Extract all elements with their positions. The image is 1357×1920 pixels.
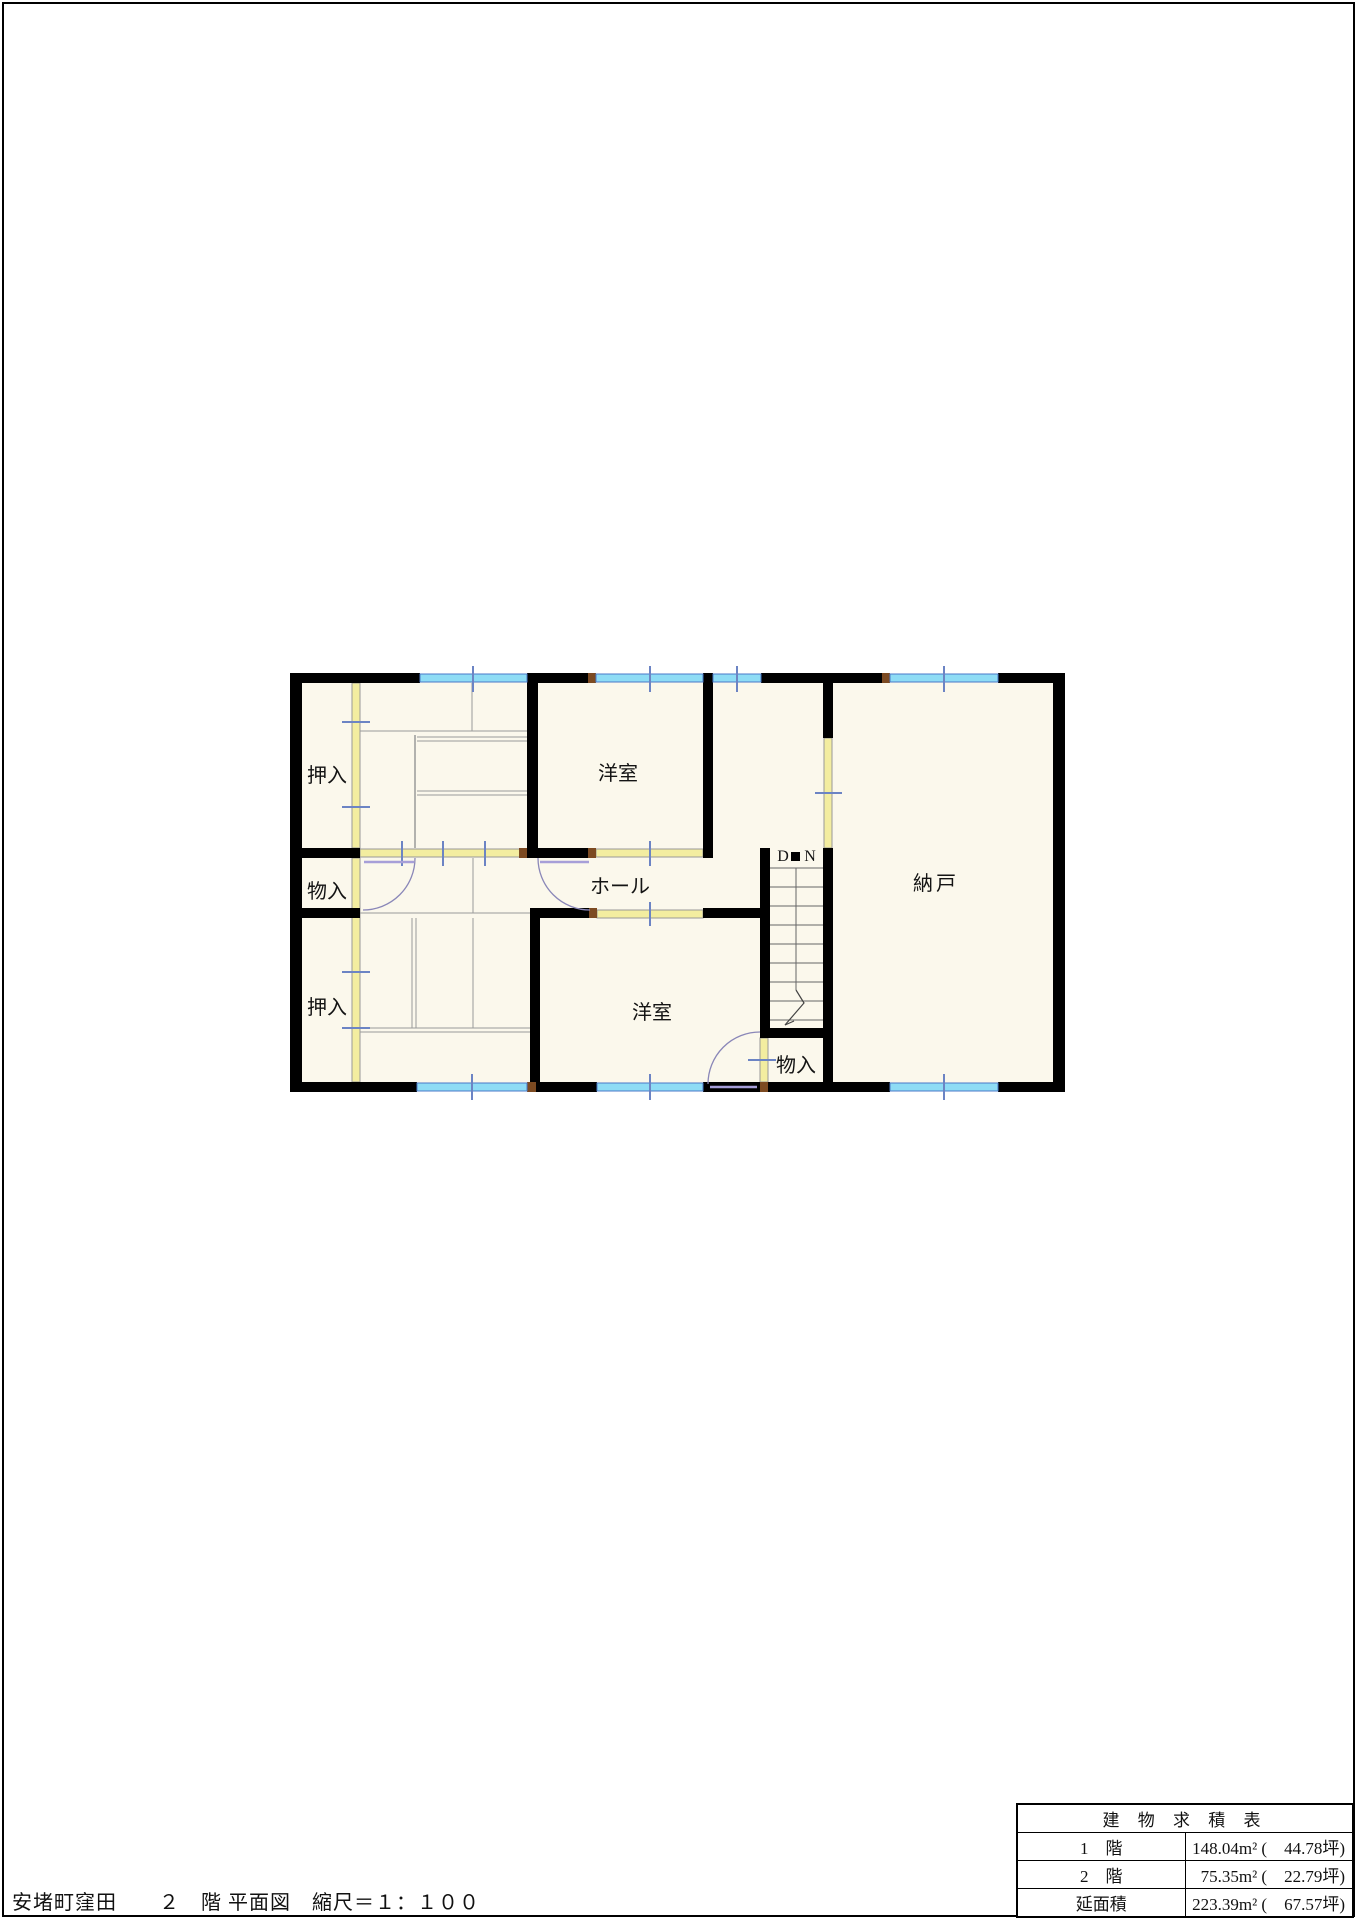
room-label-storeroom: 納戸 (913, 872, 959, 895)
room-label-western-room-top: 洋室 (598, 762, 638, 785)
area-table-header-row: 建 物 求 積 表 (1017, 1804, 1353, 1833)
room-label-storage-by-stairs: 物入 (776, 1054, 816, 1077)
room-label-storage-left: 物入 (307, 880, 347, 903)
room-label-western-room-bottom: 洋室 (632, 1001, 672, 1024)
area-table-value-floor1: 148.04m² ( 44.78坪) (1185, 1833, 1353, 1861)
title-block: 安堵町窪田 ２ 階 平面図 縮尺＝１：１００ (12, 1886, 480, 1915)
area-table-title: 建 物 求 積 表 (1017, 1804, 1353, 1833)
area-table-label-total: 延面積 (1017, 1889, 1185, 1918)
floor-plan: 押入 物入 押入 洋室 ホール 洋室 納戸 物入 D N (0, 0, 1357, 1920)
area-table-row-total: 延面積 223.39m² ( 67.57坪) (1017, 1889, 1353, 1918)
area-table-label-floor2: 2 階 (1017, 1861, 1185, 1889)
area-table-row-floor2: 2 階 75.35m² ( 22.79坪) (1017, 1861, 1353, 1889)
stairs-down-label-d: D (777, 848, 789, 865)
area-table-value-floor2: 75.35m² ( 22.79坪) (1185, 1861, 1353, 1889)
stairs-down-label-n: N (804, 848, 816, 865)
area-table-label-floor1: 1 階 (1017, 1833, 1185, 1861)
room-label-closet-top-left: 押入 (307, 764, 347, 787)
room-label-hall: ホール (590, 876, 650, 898)
room-label-closet-bottom-left: 押入 (307, 996, 347, 1019)
area-table-row-floor1: 1 階 148.04m² ( 44.78坪) (1017, 1833, 1353, 1861)
area-table: 建 物 求 積 表 1 階 148.04m² ( 44.78坪) 2 階 75.… (1016, 1803, 1354, 1918)
stairs-down-marker (791, 852, 800, 861)
drawing-page: 押入 物入 押入 洋室 ホール 洋室 納戸 物入 D N 安堵町窪田 ２ 階 平… (0, 0, 1357, 1920)
area-table-value-total: 223.39m² ( 67.57坪) (1185, 1889, 1353, 1918)
